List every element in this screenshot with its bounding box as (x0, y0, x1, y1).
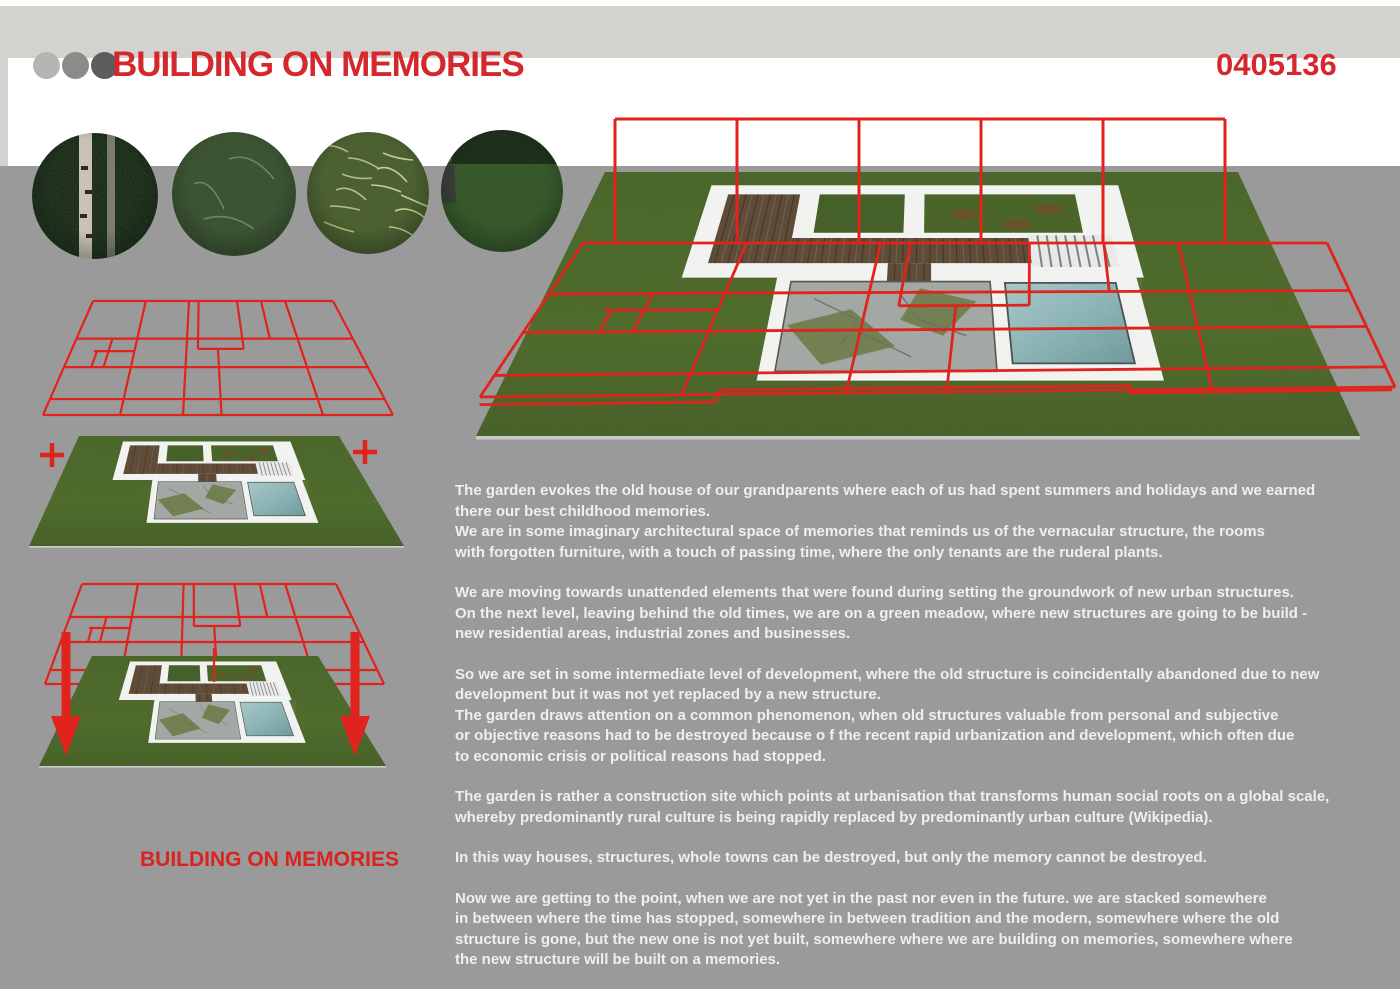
paragraph-2: We are moving towards unattended element… (455, 583, 1375, 645)
plus-icon (40, 443, 64, 467)
photo-fern-thicket (172, 132, 296, 256)
diagram-overlay-arrows (22, 570, 407, 792)
caption-building-on-memories: BUILDING ON MEMORIES (140, 848, 399, 872)
photo-forest-trunks (32, 133, 158, 259)
plus-icon (353, 440, 377, 464)
paragraph-6: Now we are getting to the point, when we… (455, 889, 1375, 971)
wireframe-plan (43, 301, 393, 415)
diagram-garden-plan (22, 425, 412, 570)
dot-light-icon (33, 52, 60, 79)
photo-dry-grass (307, 132, 431, 254)
garden-render (39, 656, 386, 767)
left-edge-strip (0, 58, 8, 166)
paragraph-5: In this way houses, structures, whole to… (455, 848, 1375, 869)
paragraph-1: The garden evokes the old house of our g… (455, 481, 1375, 563)
presentation-board: BUILDING ON MEMORIES 0405136 BUILDING ON… (0, 0, 1400, 989)
grass-room-right (924, 194, 1083, 232)
grass-room-right (211, 445, 278, 461)
grass-room-right (207, 665, 267, 681)
diagram-wireframe-plan (20, 292, 398, 428)
wood-corridor (158, 684, 249, 694)
paragraph-3: So we are set in some intermediate level… (455, 665, 1375, 768)
main-garden-render (455, 105, 1400, 455)
header-dots (33, 52, 120, 79)
dot-medium-icon (62, 52, 89, 79)
paragraph-4: The garden is rather a construction site… (455, 787, 1375, 828)
grass-room-mid (167, 665, 200, 681)
page-title: BUILDING ON MEMORIES (112, 45, 524, 85)
garden-render (29, 436, 404, 547)
grass-room-mid (166, 445, 203, 461)
project-number: 0405136 (1216, 47, 1337, 83)
article-text: The garden evokes the old house of our g… (455, 481, 1375, 989)
